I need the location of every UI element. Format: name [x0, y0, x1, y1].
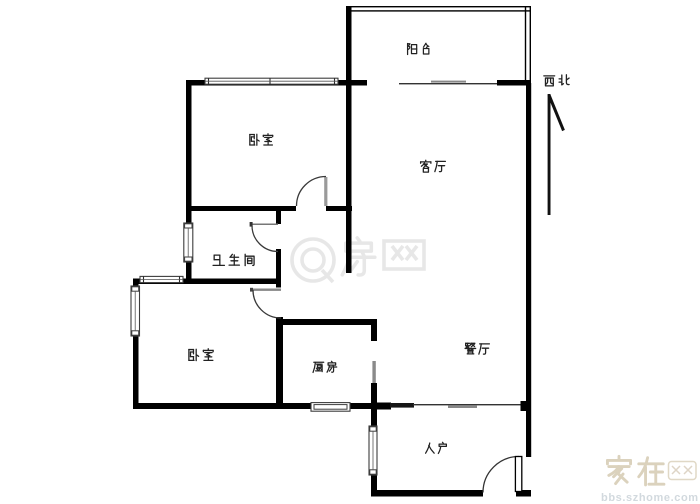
svg-text:bbs.szhome.com: bbs.szhome.com: [601, 492, 699, 504]
